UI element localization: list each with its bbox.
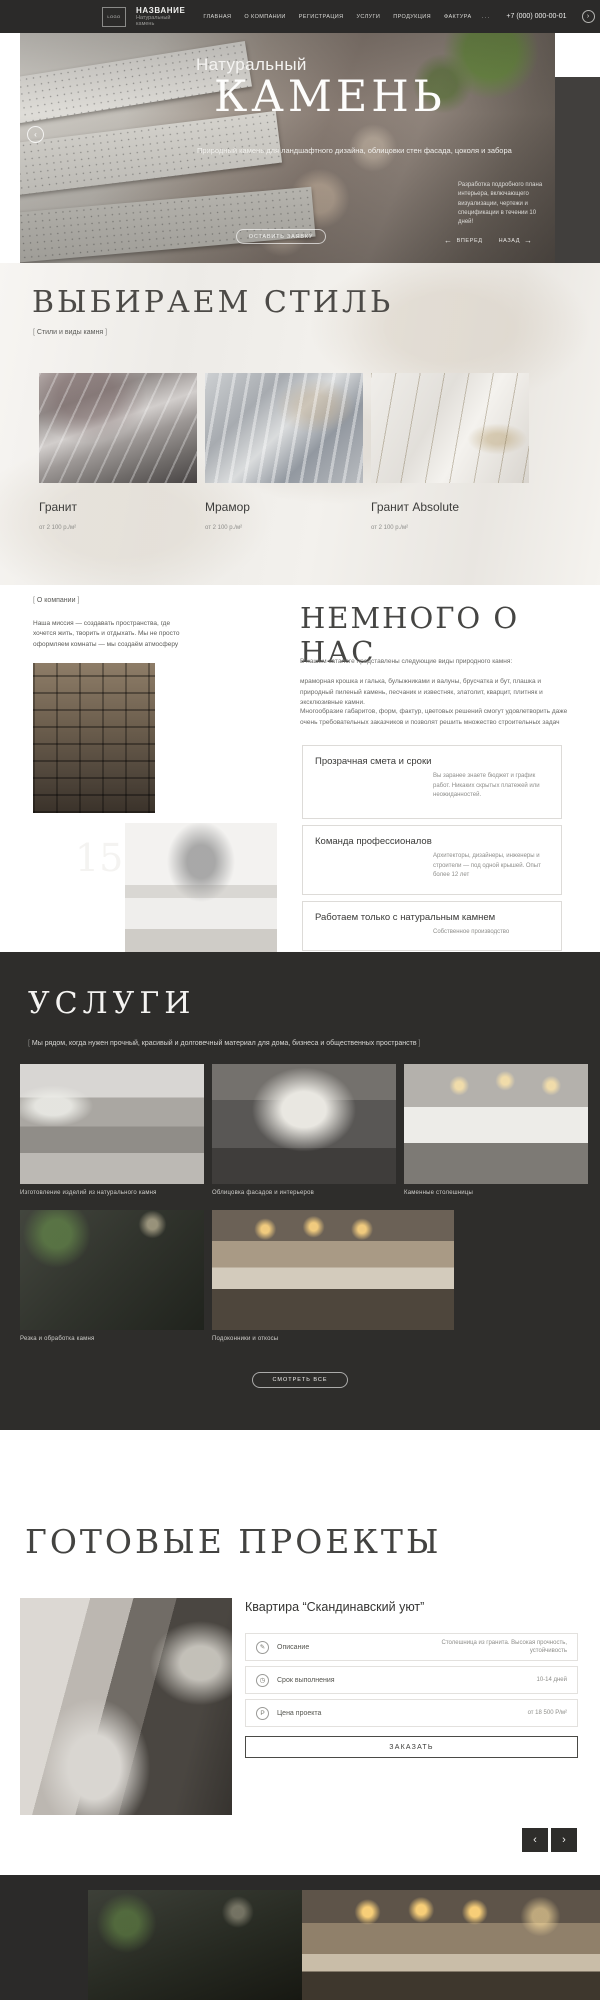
service-caption: Резка и обработка камня xyxy=(20,1336,204,1342)
service-caption: Каменные столешницы xyxy=(404,1190,588,1196)
experience-number: 15 xyxy=(75,841,123,875)
nav-item-about[interactable]: О КОМПАНИИ xyxy=(244,14,285,20)
services-section-tag: Мы рядом, когда нужен прочный, красивый … xyxy=(28,1040,420,1047)
about-paragraph: Многообразие габаритов, форм, фактур, цв… xyxy=(300,707,572,728)
spec-row-price: Р Цена проекта от 18 500 Р/м² xyxy=(245,1699,578,1727)
logo[interactable]: LOGO xyxy=(102,7,126,27)
hero-side-panel xyxy=(555,77,600,263)
kitchen-photo xyxy=(125,823,277,952)
spec-row-duration: ◷ Срок выполнения 10-14 дней xyxy=(245,1666,578,1694)
call-arrow-button[interactable]: › xyxy=(582,10,595,23)
arrow-right-icon: → xyxy=(524,236,533,245)
brand-name: НАЗВАНИЕ xyxy=(136,6,185,15)
spec-label: Срок выполнения xyxy=(277,1677,335,1684)
spec-value: Столешница из гранита. Высокая прочность… xyxy=(417,1639,567,1656)
spec-label: Описание xyxy=(277,1644,309,1651)
spec-value: 10-14 дней xyxy=(417,1676,567,1684)
chevron-right-icon: › xyxy=(587,13,589,20)
arrow-left-icon: ← xyxy=(444,236,453,245)
services-section: УСЛУГИ Мы рядом, когда нужен прочный, кр… xyxy=(0,952,600,1430)
styles-section-tag: Стили и виды камня xyxy=(33,329,107,336)
service-card[interactable]: Подоконники и откосы xyxy=(212,1210,454,1342)
stone-card-granite[interactable] xyxy=(39,373,197,483)
hero-title: Натуральный КАМЕНЬ xyxy=(196,55,446,120)
nav-item-registration[interactable]: РЕГИСТРАЦИЯ xyxy=(299,14,344,20)
advantage-title: Команда профессионалов xyxy=(315,836,549,847)
hero-section: Натуральный КАМЕНЬ Природный камень для … xyxy=(0,33,600,263)
slider-prev-label: ВПЕРЕД xyxy=(457,238,483,244)
chevron-right-icon: › xyxy=(562,1834,566,1846)
service-caption: Облицовка фасадов и интерьеров xyxy=(212,1190,396,1196)
service-caption: Подоконники и откосы xyxy=(212,1336,454,1342)
hero-slider-controls: ← ВПЕРЕД НАЗАД → xyxy=(444,236,533,245)
see-all-button[interactable]: СМОТРЕТЬ ВСЕ xyxy=(252,1372,348,1388)
gallery-photo-interior xyxy=(88,1890,302,2000)
main-nav: ГЛАВНАЯ О КОМПАНИИ РЕГИСТРАЦИЯ УСЛУГИ ПР… xyxy=(203,14,471,20)
advantage-title: Работаем только с натуральным камнем xyxy=(315,912,549,923)
stone-price: от 2 100 р./м² xyxy=(205,525,242,531)
price-icon: Р xyxy=(256,1707,269,1720)
chevron-left-icon: ‹ xyxy=(533,1834,537,1846)
nav-item-services[interactable]: УСЛУГИ xyxy=(357,14,381,20)
service-photo xyxy=(20,1210,204,1330)
about-paragraph: В нашем каталоге представлены следующие … xyxy=(300,657,572,668)
mission-text: Наша миссия — создавать пространства, гд… xyxy=(33,619,185,650)
request-button[interactable]: ОСТАВИТЬ ЗАЯВКУ xyxy=(236,229,326,244)
spec-label: Цена проекта xyxy=(277,1710,321,1717)
stone-samples-photo: 15 ЛЕТ ОПЫТА РАБОТЫ xyxy=(33,663,155,813)
clock-icon: ◷ xyxy=(256,1674,269,1687)
about-paragraph: мраморная крошка и галька, булыжниками и… xyxy=(300,677,572,709)
landing-page: LOGO НАЗВАНИЕ Натуральный камень ГЛАВНАЯ… xyxy=(0,0,600,2000)
hero-circle-button[interactable]: ‹ xyxy=(27,126,44,143)
nav-item-home[interactable]: ГЛАВНАЯ xyxy=(203,14,231,20)
nav-item-texture[interactable]: ФАКТУРА xyxy=(444,14,472,20)
service-photo xyxy=(20,1064,204,1184)
phone-number[interactable]: +7 (000) 000-00-01 xyxy=(506,13,566,20)
hero-side-note: Разработка подробного плана интерьера, в… xyxy=(458,181,550,227)
bottom-gallery-section xyxy=(0,1875,600,2000)
stone-card-marble[interactable] xyxy=(205,373,363,483)
slider-prev-button[interactable]: ← ВПЕРЕД xyxy=(444,236,483,245)
projects-prev-button[interactable]: ‹ xyxy=(522,1828,548,1852)
service-card[interactable]: Резка и обработка камня xyxy=(20,1210,204,1342)
advantage-text: Архитекторы, дизайнеры, инженеры и строи… xyxy=(433,852,551,881)
advantage-text: Вы заранее знаете бюджет и график работ.… xyxy=(433,772,551,801)
advantage-card-team: Команда профессионалов Архитекторы, диза… xyxy=(302,825,562,895)
projects-next-button[interactable]: › xyxy=(551,1828,577,1852)
chevron-left-icon: ‹ xyxy=(34,130,37,139)
order-button[interactable]: ЗАКАЗАТЬ xyxy=(245,1736,578,1758)
service-card[interactable]: Изготовление изделий из натурального кам… xyxy=(20,1064,204,1196)
advantage-title: Прозрачная смета и сроки xyxy=(315,756,549,767)
projects-section: ГОТОВЫЕ ПРОЕКТЫ Квартира “Скандинавский … xyxy=(0,1430,600,1875)
advantage-card-natural-stone: Работаем только с натуральным камнем Соб… xyxy=(302,901,562,951)
brand-block: НАЗВАНИЕ Натуральный камень xyxy=(136,6,185,28)
hero-title-line2: КАМЕНЬ xyxy=(214,75,446,120)
stone-card-granite-absolute[interactable] xyxy=(371,373,529,483)
gallery-photo-kitchen xyxy=(302,1890,600,2000)
menu-ellipsis-icon[interactable]: ... xyxy=(482,13,491,20)
project-photo xyxy=(20,1598,232,1815)
styles-section-title: ВЫБИРАЕМ СТИЛЬ xyxy=(32,285,393,320)
about-section-tag: О компании xyxy=(33,597,79,604)
spec-row-description: ✎ Описание Столешница из гранита. Высока… xyxy=(245,1633,578,1661)
service-caption: Изготовление изделий из натурального кам… xyxy=(20,1190,204,1196)
stone-price: от 2 100 р./м² xyxy=(39,525,76,531)
slider-next-button[interactable]: НАЗАД → xyxy=(499,236,533,245)
slider-next-label: НАЗАД xyxy=(499,238,520,244)
description-icon: ✎ xyxy=(256,1641,269,1654)
stone-name: Мрамор xyxy=(205,500,250,514)
styles-section: ВЫБИРАЕМ СТИЛЬ Стили и виды камня Гранит… xyxy=(0,263,600,585)
service-photo xyxy=(212,1210,454,1330)
header: LOGO НАЗВАНИЕ Натуральный камень ГЛАВНАЯ… xyxy=(0,0,600,33)
stone-name: Гранит xyxy=(39,500,77,514)
spec-value: от 18 500 Р/м² xyxy=(417,1709,567,1717)
services-section-title: УСЛУГИ xyxy=(28,986,195,1021)
service-photo xyxy=(404,1064,588,1184)
project-name: Квартира “Скандинавский уют” xyxy=(245,1600,424,1614)
advantage-text: Собственное производство xyxy=(433,928,551,938)
brand-subtitle: Натуральный камень xyxy=(136,15,185,28)
service-card[interactable]: Облицовка фасадов и интерьеров xyxy=(212,1064,396,1196)
stone-price: от 2 100 р./м² xyxy=(371,525,408,531)
about-section: О компании Наша миссия — создавать прост… xyxy=(0,585,600,952)
projects-section-title: ГОТОВЫЕ ПРОЕКТЫ xyxy=(25,1522,441,1561)
service-card[interactable]: Каменные столешницы xyxy=(404,1064,588,1196)
hero-subtitle: Природный камень для ландшафтного дизайн… xyxy=(197,145,549,156)
stone-name: Гранит Absolute xyxy=(371,500,459,514)
nav-item-products[interactable]: ПРОДУКЦИЯ xyxy=(393,14,431,20)
advantage-card-estimate: Прозрачная смета и сроки Вы заранее знае… xyxy=(302,745,562,819)
service-photo xyxy=(212,1064,396,1184)
logo-label: LOGO xyxy=(107,14,120,19)
